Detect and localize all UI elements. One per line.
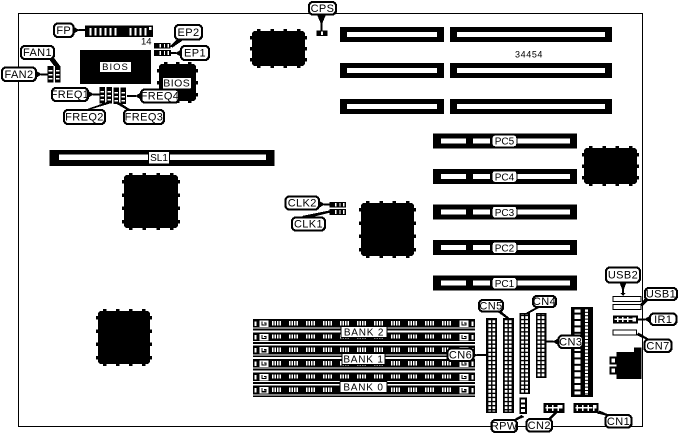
- svg-text:BANK 1: BANK 1: [343, 354, 383, 365]
- svg-text:PC5: PC5: [495, 137, 515, 148]
- svg-text:CN6: CN6: [449, 350, 472, 362]
- svg-text:USB1: USB1: [646, 289, 676, 301]
- svg-text:CN3: CN3: [559, 337, 582, 349]
- svg-text:FREQ2: FREQ2: [65, 112, 104, 124]
- svg-text:FREQ4: FREQ4: [141, 91, 180, 103]
- svg-text:CN2: CN2: [528, 420, 551, 432]
- svg-text:PC2: PC2: [495, 243, 515, 254]
- svg-text:PC4: PC4: [495, 172, 515, 183]
- svg-text:BANK 2: BANK 2: [344, 327, 384, 338]
- svg-text:USB2: USB2: [608, 270, 638, 282]
- svg-text:CN5: CN5: [479, 301, 502, 313]
- svg-text:SL1: SL1: [150, 153, 168, 164]
- svg-text:CPS: CPS: [311, 3, 335, 15]
- svg-text:BANK 0: BANK 0: [343, 382, 383, 393]
- svg-text:FAN2: FAN2: [4, 69, 33, 81]
- svg-text:CLK2: CLK2: [288, 198, 317, 210]
- svg-text:RPW: RPW: [491, 421, 518, 433]
- svg-text:CN4: CN4: [533, 296, 556, 308]
- svg-text:BIOS: BIOS: [102, 62, 129, 73]
- svg-text:FREQ1: FREQ1: [51, 89, 90, 101]
- svg-text:EP2: EP2: [178, 27, 200, 39]
- svg-text:FP: FP: [56, 25, 71, 37]
- svg-text:BIOS: BIOS: [163, 78, 190, 90]
- svg-text:CLK1: CLK1: [294, 219, 323, 231]
- svg-text:IR1: IR1: [654, 314, 672, 326]
- svg-text:EP1: EP1: [184, 48, 206, 60]
- svg-text:34454: 34454: [515, 50, 543, 60]
- svg-text:PC3: PC3: [495, 208, 515, 219]
- svg-text:FREQ3: FREQ3: [125, 112, 164, 124]
- svg-text:CN7: CN7: [646, 341, 669, 353]
- svg-text:PC1: PC1: [495, 279, 515, 290]
- svg-text:CN1: CN1: [607, 416, 630, 428]
- svg-text:14: 14: [141, 37, 152, 48]
- svg-text:FAN1: FAN1: [23, 47, 52, 59]
